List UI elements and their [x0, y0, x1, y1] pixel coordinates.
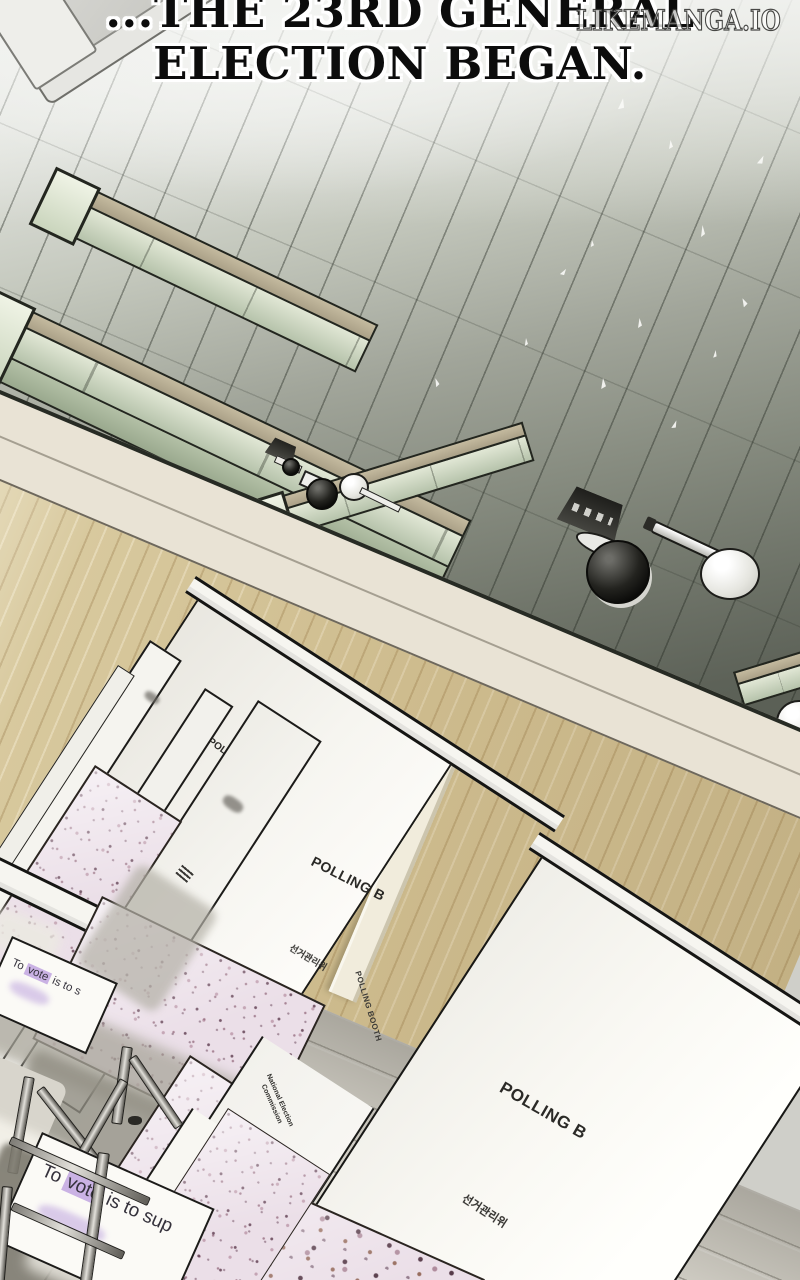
booth-org-label: National Election Commission — [255, 1073, 294, 1132]
dome-camera-icon — [306, 478, 338, 510]
caption-line-2: ELECTION BEGAN. — [0, 38, 800, 90]
white-dome-fixture-icon — [339, 473, 369, 501]
banner-small-post: is to s — [47, 974, 82, 998]
dome-camera-icon — [282, 458, 300, 476]
bracket-vents — [571, 503, 613, 526]
table-leg-foot — [128, 1116, 142, 1125]
site-watermark: LIKEMANGA.IO — [576, 4, 781, 37]
dome-camera-icon — [586, 540, 650, 604]
manga-panel: POL POLLING B 선거관리위 POLLING BOOTH To vot… — [0, 0, 800, 1280]
white-dome-camera-icon — [700, 548, 760, 600]
